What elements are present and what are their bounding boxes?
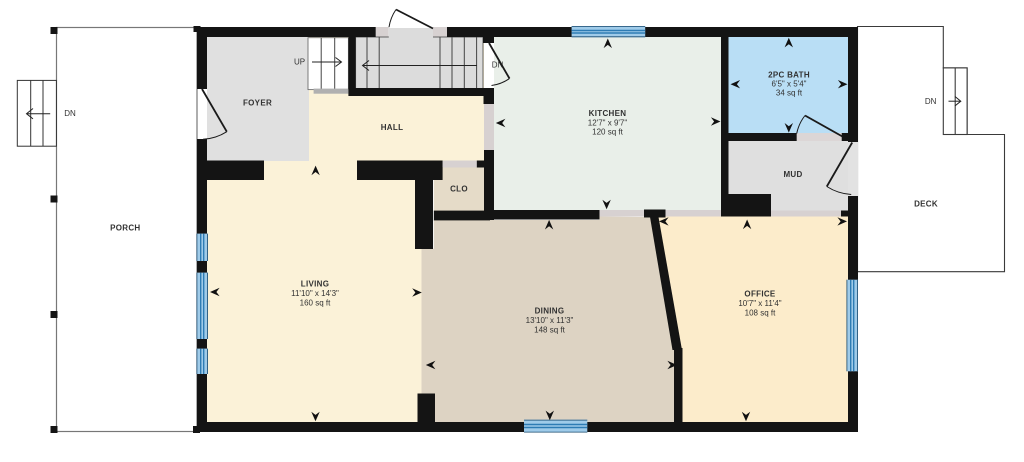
svg-text:KITCHEN: KITCHEN <box>589 109 627 118</box>
svg-text:CLO: CLO <box>450 184 468 193</box>
svg-text:34 sq ft: 34 sq ft <box>776 88 803 97</box>
svg-text:11'10" x 14'3": 11'10" x 14'3" <box>291 289 339 298</box>
svg-text:DINING: DINING <box>535 307 565 316</box>
svg-text:13'10" x 11'3": 13'10" x 11'3" <box>526 316 574 325</box>
svg-text:10'7" x 11'4": 10'7" x 11'4" <box>738 299 781 308</box>
svg-text:160 sq ft: 160 sq ft <box>300 298 331 307</box>
svg-text:DECK: DECK <box>914 199 938 208</box>
svg-text:2PC BATH: 2PC BATH <box>768 71 810 80</box>
svg-text:FOYER: FOYER <box>243 98 272 107</box>
svg-text:DN: DN <box>925 97 937 106</box>
svg-text:DN: DN <box>64 109 76 118</box>
svg-text:120 sq ft: 120 sq ft <box>592 128 623 137</box>
svg-text:108 sq ft: 108 sq ft <box>745 308 776 317</box>
svg-text:HALL: HALL <box>381 123 404 132</box>
svg-text:OFFICE: OFFICE <box>744 289 775 298</box>
svg-text:12'7" x 9'7": 12'7" x 9'7" <box>588 118 628 127</box>
svg-text:6'5" x 5'4": 6'5" x 5'4" <box>772 80 807 89</box>
svg-text:MUD: MUD <box>783 170 802 179</box>
svg-text:LIVING: LIVING <box>301 279 329 288</box>
svg-text:UP: UP <box>294 58 305 67</box>
svg-text:PORCH: PORCH <box>110 224 140 233</box>
svg-text:148 sq ft: 148 sq ft <box>534 326 565 335</box>
